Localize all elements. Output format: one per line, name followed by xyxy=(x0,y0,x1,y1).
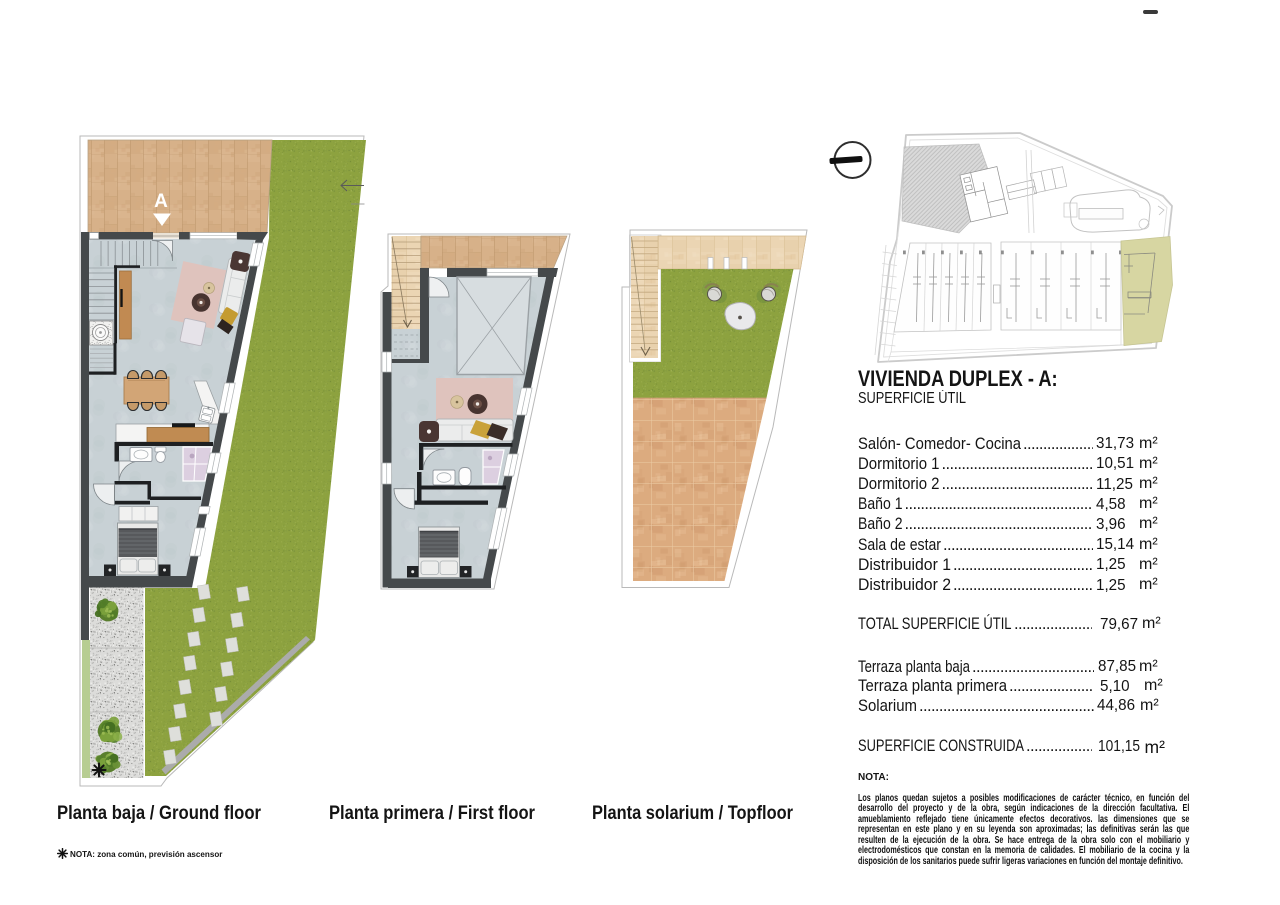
svg-text:A: A xyxy=(154,191,168,212)
